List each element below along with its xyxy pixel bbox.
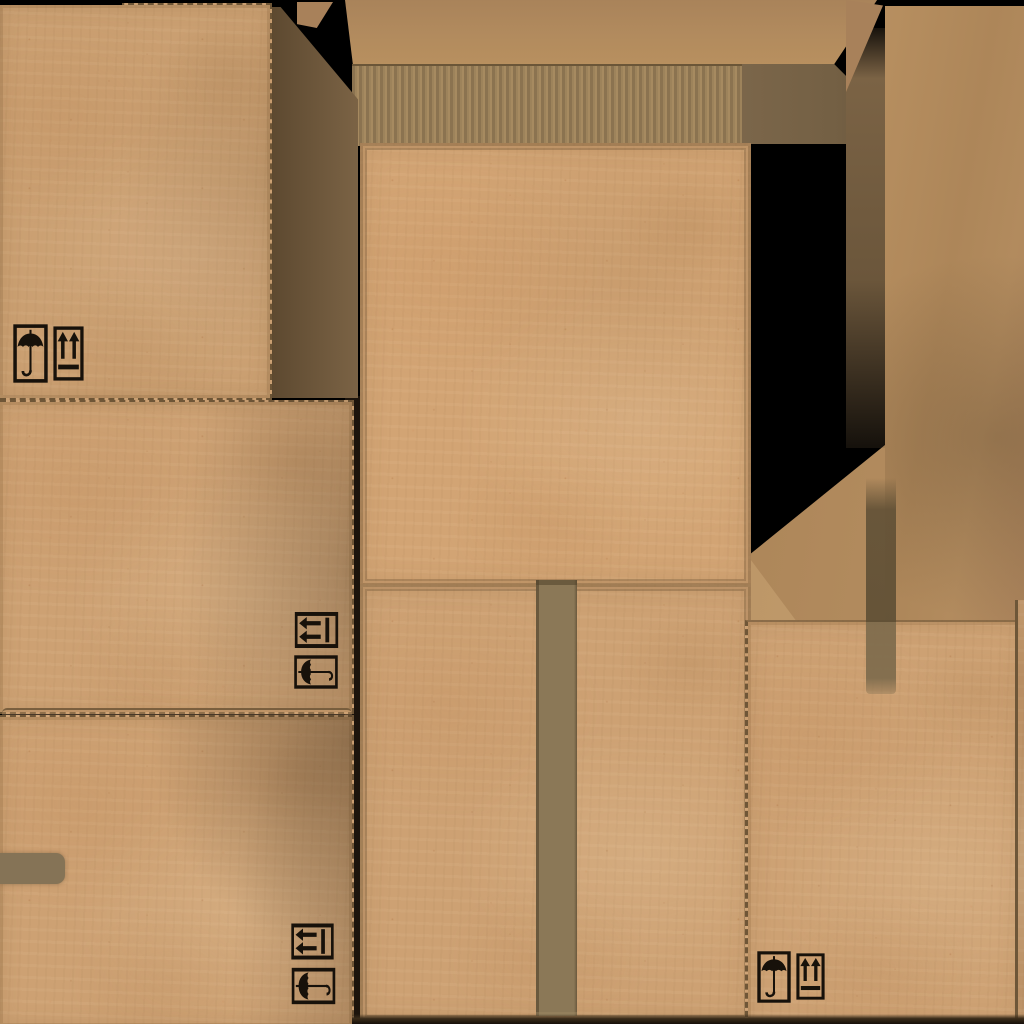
this-side-up-rotated-icon: [294, 611, 338, 648]
tape-strip-right-lower: [866, 622, 896, 694]
keep-dry-icon: [757, 951, 791, 1003]
panel-center-top: [360, 143, 751, 586]
this-side-up-icon: [796, 953, 825, 1000]
tape-strip-right-upper: [866, 478, 896, 622]
this-side-up-icon: [53, 326, 84, 381]
keep-dry-icon: [13, 324, 48, 383]
corrugated-edge: [352, 64, 742, 146]
right-flap-extension: [745, 445, 885, 622]
texture-atlas-canvas: [0, 0, 1024, 1024]
panel-top-left-black-notch: [0, 0, 122, 5]
top-flap-strip: [345, 0, 883, 66]
tape-fragment: [0, 853, 65, 884]
panel-right-edge-strip: [1018, 600, 1024, 1024]
this-side-up-rotated-icon: [291, 923, 334, 960]
top-flap-sliver: [297, 2, 333, 28]
keep-dry-rotated-icon: [291, 967, 335, 1004]
shadow-wedge-left: [272, 5, 358, 398]
tape-strip-center: [536, 580, 577, 1016]
keep-dry-rotated-icon: [294, 655, 338, 689]
right-flap: [885, 6, 1024, 622]
bottom-edge-line: [352, 1014, 1024, 1024]
shadow-band-right: [846, 28, 885, 448]
